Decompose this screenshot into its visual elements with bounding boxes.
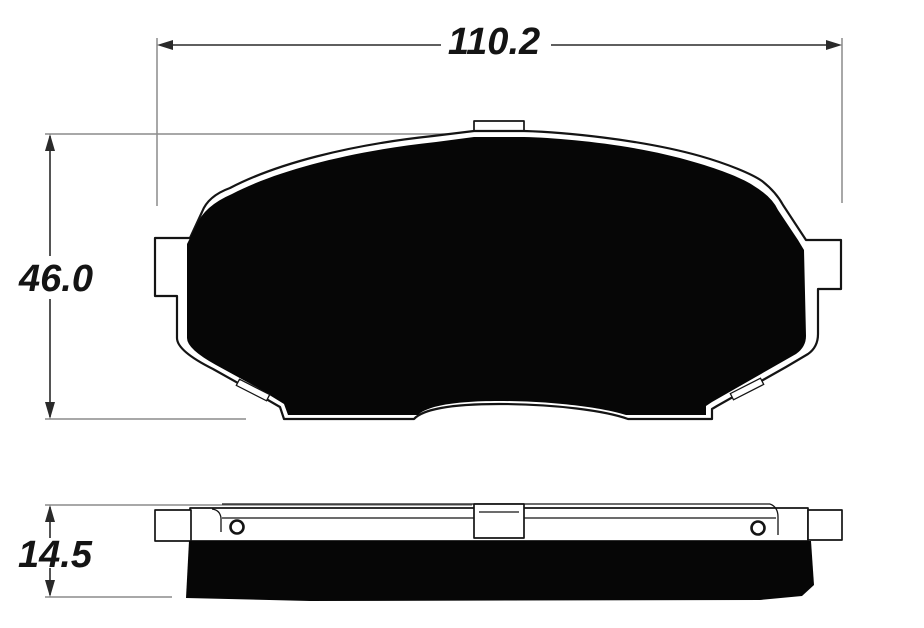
side-tab-left xyxy=(155,510,191,541)
thickness-dimension-label: 14.5 xyxy=(18,534,93,576)
brake-pad-technical-drawing: 110.2 46.0 xyxy=(0,0,924,628)
side-center-clip xyxy=(474,504,524,538)
pad-side-view xyxy=(155,504,842,601)
drawing-canvas: 110.2 46.0 xyxy=(0,0,924,628)
side-tab-right xyxy=(808,510,842,540)
side-rivet-right xyxy=(752,522,765,535)
arrow-down-icon xyxy=(45,580,55,597)
pad-friction-area xyxy=(187,137,806,415)
arrow-up-icon xyxy=(45,505,55,522)
pad-front-view xyxy=(155,121,841,419)
arrow-down-icon xyxy=(45,402,55,419)
side-rivet-left xyxy=(231,521,244,534)
arrow-up-icon xyxy=(45,134,55,151)
height-dimension-label: 46.0 xyxy=(18,258,93,300)
arrow-right-icon xyxy=(826,40,842,50)
arrow-left-icon xyxy=(157,40,173,50)
side-friction-block xyxy=(186,541,814,601)
width-dimension-label: 110.2 xyxy=(448,21,540,63)
